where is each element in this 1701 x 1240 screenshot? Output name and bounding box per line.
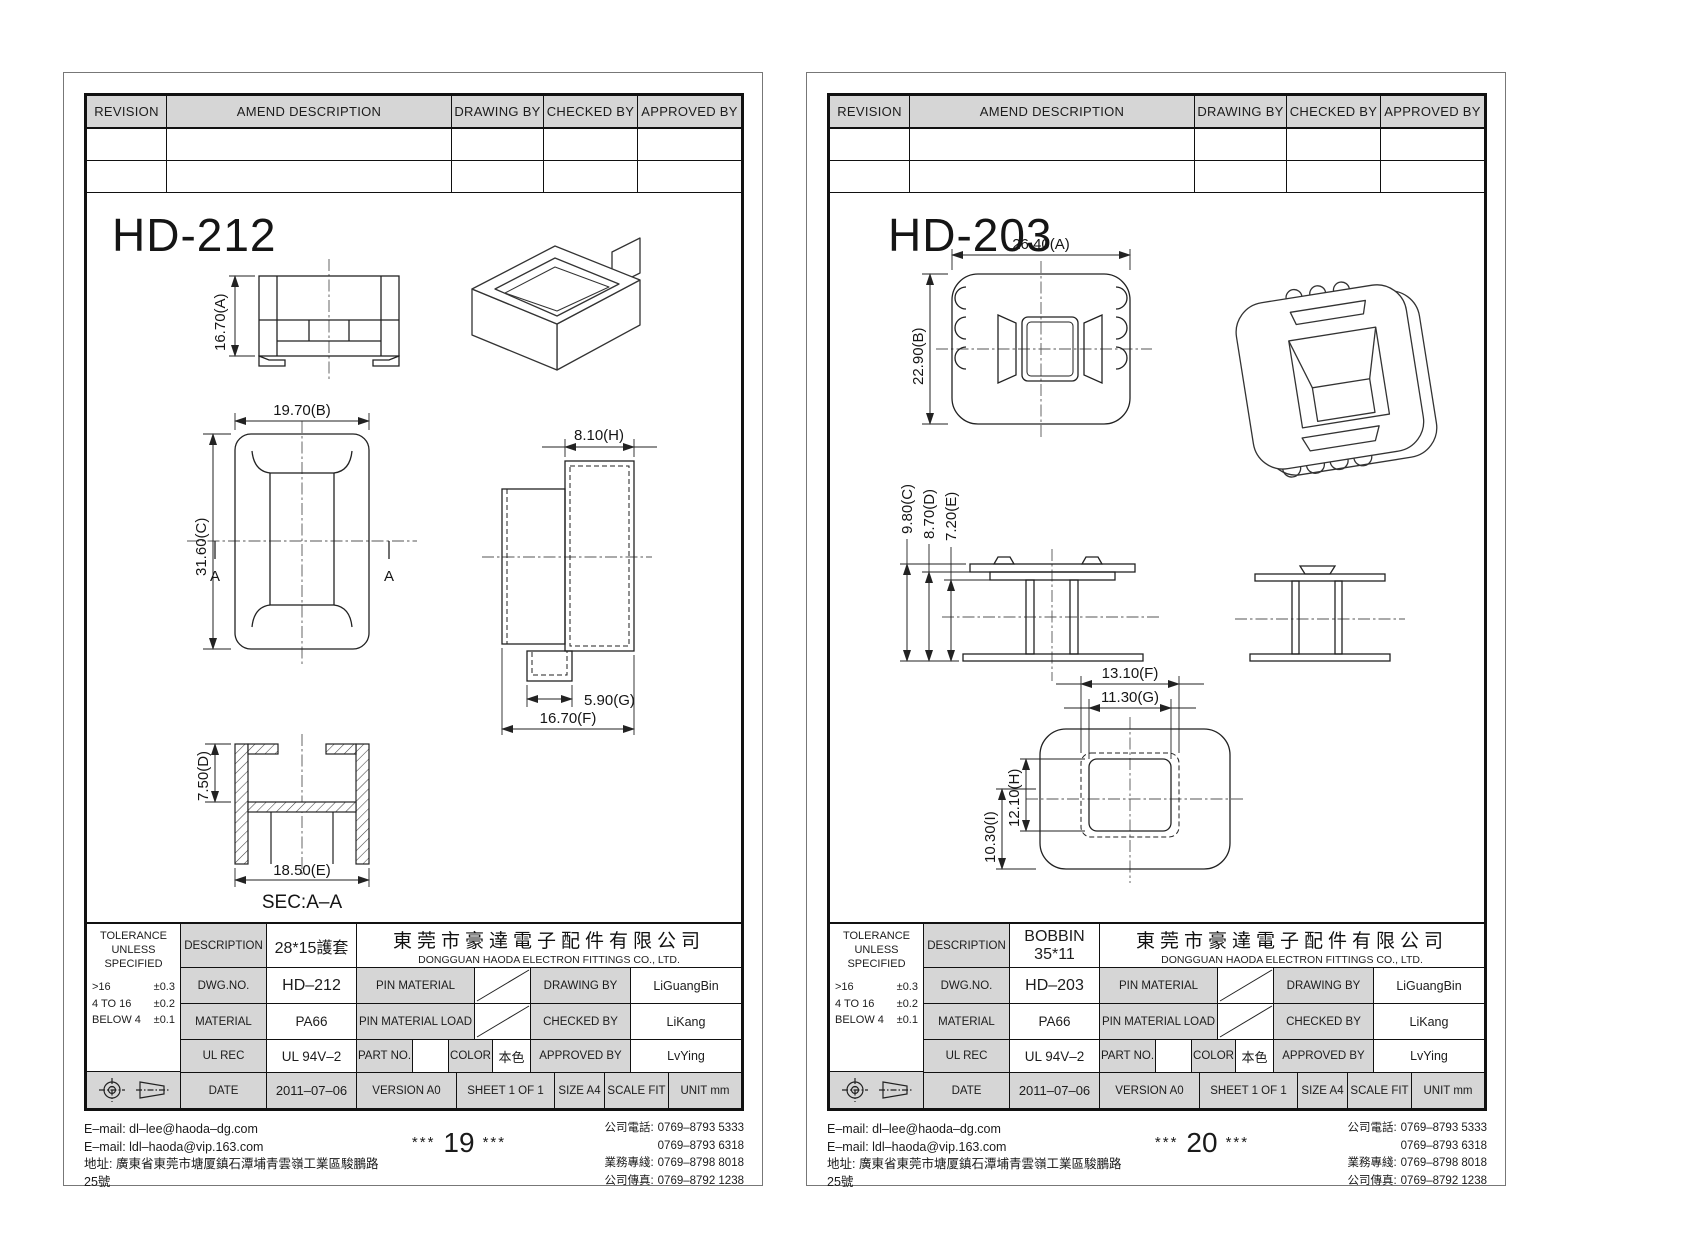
company-name-cn: 東莞市豪達電子配件有限公司 bbox=[1136, 926, 1448, 953]
diagonal-slash bbox=[1218, 1004, 1273, 1039]
drawing-sheet-hd203: REVISION AMEND DESCRIPTION DRAWING BY CH… bbox=[806, 72, 1506, 1186]
title-block: TOLERANCE UNLESS SPECIFIED >16±0.3 4 TO … bbox=[830, 922, 1484, 1108]
footer-contact-right: 公司電話:0769–8793 5333 0769–8793 6318 業務專綫:… bbox=[534, 1121, 744, 1191]
dim-label-D: 8.70(D) bbox=[921, 489, 938, 539]
page-marker-stars: *** bbox=[1226, 1127, 1250, 1151]
dim-label-A: 16.70(A) bbox=[212, 293, 229, 351]
footer-contact-left: E–mail: dl–lee@haoda–dg.com E–mail: ldl–… bbox=[827, 1121, 1127, 1191]
ul-rec-value: UL 94V–2 bbox=[1010, 1040, 1100, 1072]
part-no-value bbox=[1156, 1040, 1192, 1072]
projection-symbols-cell bbox=[87, 1072, 180, 1108]
drawing-by-label: DRAWING BY bbox=[531, 968, 631, 1003]
dwg-no-value: HD–212 bbox=[267, 968, 357, 1003]
sheet-of-cell: SHEET 1 OF 1 bbox=[457, 1073, 555, 1108]
dim-label-B: 19.70(B) bbox=[273, 402, 331, 419]
hd212-isometric-view bbox=[472, 238, 640, 370]
dwg-no-row: DWG.NO. HD–203 PIN MATERIAL DRAWING BY L… bbox=[924, 968, 1484, 1004]
tolerance-line3: SPECIFIED bbox=[92, 958, 175, 972]
size-cell: SIZE A4 bbox=[555, 1073, 605, 1108]
footer-address: 地址: 廣東省東莞市塘厦鎮石潭埔青雲嶺工業區駿鵬路25號 bbox=[827, 1156, 1127, 1191]
checked-by-col: CHECKED BY bbox=[544, 96, 638, 127]
empty-cell bbox=[1287, 161, 1381, 192]
hd212-top-view bbox=[229, 259, 399, 381]
tol-value: ±0.3 bbox=[154, 979, 175, 996]
date-value: 2011–07–06 bbox=[1010, 1073, 1100, 1108]
drawing-frame: REVISION AMEND DESCRIPTION DRAWING BY CH… bbox=[827, 93, 1487, 1111]
revision-table: REVISION AMEND DESCRIPTION DRAWING BY CH… bbox=[830, 96, 1484, 193]
tel-number-2: 0769–8793 6318 bbox=[658, 1139, 744, 1157]
title-block-main: DESCRIPTION BOBBIN 35*11 東莞市豪達電子配件有限公司 D… bbox=[924, 924, 1484, 1108]
tolerance-rule-3: BELOW 4±0.1 bbox=[92, 1012, 175, 1029]
material-value: PA66 bbox=[1010, 1004, 1100, 1039]
revision-col: REVISION bbox=[830, 96, 910, 127]
tel-label: 公司電話: bbox=[604, 1121, 653, 1139]
page-number: 19 bbox=[443, 1127, 474, 1159]
description-row: DESCRIPTION BOBBIN 35*11 東莞市豪達電子配件有限公司 D… bbox=[924, 924, 1484, 968]
part-no-label: PART NO. bbox=[1100, 1040, 1156, 1072]
tolerance-column: TOLERANCE UNLESS SPECIFIED >16±0.3 4 TO … bbox=[830, 924, 924, 1108]
dim-label-G: 11.30(G) bbox=[1101, 689, 1159, 706]
drawing-by-col: DRAWING BY bbox=[452, 96, 544, 127]
unit-cell: UNIT mm bbox=[1412, 1073, 1484, 1108]
tolerance-line2: UNLESS bbox=[835, 944, 918, 958]
drawing-by-col: DRAWING BY bbox=[1195, 96, 1287, 127]
tel-label: 公司電話: bbox=[1347, 1121, 1396, 1139]
approved-by-col: APPROVED BY bbox=[1381, 96, 1484, 127]
sheet-title: HD-203 bbox=[888, 209, 1053, 261]
hd203-bottom-view bbox=[996, 676, 1244, 883]
tolerance-rule-1: >16±0.3 bbox=[92, 979, 175, 996]
dwg-no-label: DWG.NO. bbox=[924, 968, 1010, 1003]
tol-value: ±0.3 bbox=[897, 979, 918, 996]
empty-cell bbox=[452, 129, 544, 160]
empty-cell bbox=[167, 161, 452, 192]
fax-number: 0769–8792 1238 bbox=[1401, 1174, 1487, 1192]
spacer bbox=[604, 1139, 653, 1157]
checked-by-col: CHECKED BY bbox=[1287, 96, 1381, 127]
tol-value: ±0.2 bbox=[897, 996, 918, 1013]
biz-number: 0769–8798 8018 bbox=[1401, 1156, 1487, 1174]
tol-range: 4 TO 16 bbox=[92, 996, 131, 1013]
footer-email-2: E–mail: ldl–haoda@vip.163.com bbox=[827, 1139, 1127, 1157]
ul-rec-row: UL REC UL 94V–2 PART NO. COLOR 本色 APPROV… bbox=[924, 1040, 1484, 1073]
date-row: DATE 2011–07–06 VERSION A0 SHEET 1 OF 1 … bbox=[181, 1073, 741, 1108]
pin-material-load-value bbox=[1218, 1004, 1274, 1039]
page-marker-stars: *** bbox=[1155, 1127, 1179, 1151]
footer-address: 地址: 廣東省東莞市塘厦鎮石潭埔青雲嶺工業區駿鵬路25號 bbox=[84, 1156, 384, 1191]
hd212-front-view bbox=[187, 413, 417, 667]
material-row: MATERIAL PA66 PIN MATERIAL LOAD CHECKED … bbox=[181, 1004, 741, 1040]
empty-cell bbox=[830, 161, 910, 192]
tolerance-rule-2: 4 TO 16±0.2 bbox=[835, 996, 918, 1013]
hd203-top-view bbox=[922, 249, 1152, 439]
fax-number: 0769–8792 1238 bbox=[658, 1174, 744, 1192]
empty-cell bbox=[87, 129, 167, 160]
diagonal-slash bbox=[475, 1004, 530, 1039]
footer-email-2: E–mail: ldl–haoda@vip.163.com bbox=[84, 1139, 384, 1157]
section-marker-a-left: A bbox=[210, 568, 220, 585]
tolerance-title: TOLERANCE UNLESS SPECIFIED bbox=[92, 930, 175, 971]
ul-rec-label: UL REC bbox=[181, 1040, 267, 1072]
hd212-views: HD-212 16.70(A) bbox=[87, 189, 741, 928]
amend-description-col: AMEND DESCRIPTION bbox=[910, 96, 1195, 127]
material-row: MATERIAL PA66 PIN MATERIAL LOAD CHECKED … bbox=[924, 1004, 1484, 1040]
part-no-value bbox=[413, 1040, 449, 1072]
tel-number-1: 0769–8793 5333 bbox=[1401, 1121, 1487, 1139]
sheet-footer: E–mail: dl–lee@haoda–dg.com E–mail: ldl–… bbox=[827, 1121, 1487, 1191]
pin-material-label: PIN MATERIAL bbox=[357, 968, 475, 1003]
empty-cell bbox=[638, 129, 741, 160]
pin-material-value bbox=[1218, 968, 1274, 1003]
version-cell: VERSION A0 bbox=[1100, 1073, 1200, 1108]
drawing-by-label: DRAWING BY bbox=[1274, 968, 1374, 1003]
color-value: 本色 bbox=[1236, 1040, 1274, 1072]
dim-label-H: 12.10(H) bbox=[1006, 769, 1023, 827]
empty-cell bbox=[910, 161, 1195, 192]
tolerance-line2: UNLESS bbox=[92, 944, 175, 958]
description-label: DESCRIPTION bbox=[924, 924, 1010, 967]
dim-label-A: 26.40(A) bbox=[1012, 236, 1070, 253]
dwg-no-row: DWG.NO. HD–212 PIN MATERIAL DRAWING BY L… bbox=[181, 968, 741, 1004]
sheet-title: HD-212 bbox=[112, 209, 277, 261]
dim-label-I: 10.30(I) bbox=[982, 811, 999, 863]
tol-range: >16 bbox=[835, 979, 854, 996]
tolerance-rule-1: >16±0.3 bbox=[835, 979, 918, 996]
footer-contact-right: 公司電話:0769–8793 5333 0769–8793 6318 業務專綫:… bbox=[1277, 1121, 1487, 1191]
hd212-side-view bbox=[482, 439, 657, 735]
tol-value: ±0.1 bbox=[154, 1012, 175, 1029]
tol-value: ±0.2 bbox=[154, 996, 175, 1013]
material-value: PA66 bbox=[267, 1004, 357, 1039]
description-row: DESCRIPTION 28*15護套 東莞市豪達電子配件有限公司 DONGGU… bbox=[181, 924, 741, 968]
approved-by-value: LvYing bbox=[1374, 1040, 1484, 1072]
fax-label: 公司傳真: bbox=[1347, 1174, 1396, 1192]
dim-label-F: 16.70(F) bbox=[540, 710, 597, 727]
phone-list: 公司電話:0769–8793 5333 0769–8793 6318 業務專綫:… bbox=[1347, 1121, 1487, 1191]
tolerance-rule-3: BELOW 4±0.1 bbox=[835, 1012, 918, 1029]
hd203-profile-view bbox=[900, 539, 1162, 681]
biz-label: 業務專綫: bbox=[604, 1156, 653, 1174]
empty-cell bbox=[452, 161, 544, 192]
scale-cell: SCALE FIT bbox=[1348, 1073, 1412, 1108]
tolerance-rule-2: 4 TO 16±0.2 bbox=[92, 996, 175, 1013]
projection-symbols-cell bbox=[830, 1072, 923, 1108]
dim-label-F: 13.10(F) bbox=[1102, 665, 1159, 682]
page-marker: *** 19 *** bbox=[384, 1121, 534, 1191]
description-value: BOBBIN 35*11 bbox=[1010, 924, 1100, 967]
fax-label: 公司傳真: bbox=[604, 1174, 653, 1192]
revision-header-row: REVISION AMEND DESCRIPTION DRAWING BY CH… bbox=[830, 96, 1484, 129]
checked-by-value: LiKang bbox=[631, 1004, 741, 1039]
tolerance-line1: TOLERANCE bbox=[92, 930, 175, 944]
unit-cell: UNIT mm bbox=[669, 1073, 741, 1108]
tel-number-1: 0769–8793 5333 bbox=[658, 1121, 744, 1139]
drawing-sheet-hd212: REVISION AMEND DESCRIPTION DRAWING BY CH… bbox=[63, 72, 763, 1186]
description-value: 28*15護套 bbox=[267, 924, 357, 967]
amend-description-col: AMEND DESCRIPTION bbox=[167, 96, 452, 127]
empty-cell bbox=[638, 161, 741, 192]
material-label: MATERIAL bbox=[181, 1004, 267, 1039]
tolerance-line1: TOLERANCE bbox=[835, 930, 918, 944]
empty-cell bbox=[1195, 129, 1287, 160]
checked-by-value: LiKang bbox=[1374, 1004, 1484, 1039]
tol-range: >16 bbox=[92, 979, 111, 996]
sheet-footer: E–mail: dl–lee@haoda–dg.com E–mail: ldl–… bbox=[84, 1121, 744, 1191]
dim-label-C: 9.80(C) bbox=[899, 484, 916, 534]
company-name-cn: 東莞市豪達電子配件有限公司 bbox=[393, 926, 705, 953]
approved-by-label: APPROVED BY bbox=[531, 1040, 631, 1072]
third-angle-projection-icon bbox=[879, 1077, 913, 1103]
empty-cell bbox=[167, 129, 452, 160]
company-name-en: DONGGUAN HAODA ELECTRON FITTINGS CO., LT… bbox=[418, 954, 680, 966]
footer-email-1: E–mail: dl–lee@haoda–dg.com bbox=[827, 1121, 1127, 1139]
checked-by-label: CHECKED BY bbox=[531, 1004, 631, 1039]
empty-cell bbox=[1381, 161, 1484, 192]
dim-label-H: 8.10(H) bbox=[574, 427, 624, 444]
drawing-by-value: LiGuangBin bbox=[1374, 968, 1484, 1003]
empty-cell bbox=[1287, 129, 1381, 160]
checked-by-label: CHECKED BY bbox=[1274, 1004, 1374, 1039]
biz-number: 0769–8798 8018 bbox=[658, 1156, 744, 1174]
dim-label-B: 22.90(B) bbox=[910, 327, 927, 385]
tolerance-line3: SPECIFIED bbox=[835, 958, 918, 972]
approved-by-value: LvYing bbox=[631, 1040, 741, 1072]
sheet-of-cell: SHEET 1 OF 1 bbox=[1200, 1073, 1298, 1108]
hd203-isometric-view bbox=[1231, 271, 1442, 483]
revision-header-row: REVISION AMEND DESCRIPTION DRAWING BY CH… bbox=[87, 96, 741, 129]
color-label: COLOR bbox=[449, 1040, 493, 1072]
tolerance-title: TOLERANCE UNLESS SPECIFIED bbox=[835, 930, 918, 971]
dim-label-E: 7.20(E) bbox=[943, 492, 960, 541]
empty-cell bbox=[910, 129, 1195, 160]
tel-number-2: 0769–8793 6318 bbox=[1401, 1139, 1487, 1157]
company-cell: 東莞市豪達電子配件有限公司 DONGGUAN HAODA ELECTRON FI… bbox=[1100, 924, 1484, 967]
size-cell: SIZE A4 bbox=[1298, 1073, 1348, 1108]
hd203-drawing-area: HD-203 26.40(A) bbox=[830, 189, 1484, 928]
material-label: MATERIAL bbox=[924, 1004, 1010, 1039]
company-cell: 東莞市豪達電子配件有限公司 DONGGUAN HAODA ELECTRON FI… bbox=[357, 924, 741, 967]
dim-label-C: 31.60(C) bbox=[193, 518, 210, 576]
empty-cell bbox=[544, 129, 638, 160]
dim-label-G: 5.90(G) bbox=[584, 692, 635, 709]
empty-cell bbox=[1195, 161, 1287, 192]
approved-by-label: APPROVED BY bbox=[1274, 1040, 1374, 1072]
hd203-profile-view-right bbox=[1235, 566, 1405, 661]
company-name-en: DONGGUAN HAODA ELECTRON FITTINGS CO., LT… bbox=[1161, 954, 1423, 966]
hd212-drawing-area: HD-212 16.70(A) bbox=[87, 189, 741, 928]
title-block: TOLERANCE UNLESS SPECIFIED >16±0.3 4 TO … bbox=[87, 922, 741, 1108]
tolerance-cell: TOLERANCE UNLESS SPECIFIED >16±0.3 4 TO … bbox=[87, 924, 180, 1072]
section-marker-a-right: A bbox=[384, 568, 394, 585]
hd203-views: HD-203 26.40(A) bbox=[830, 189, 1484, 928]
pin-material-load-value bbox=[475, 1004, 531, 1039]
tol-value: ±0.1 bbox=[897, 1012, 918, 1029]
page-marker-stars: *** bbox=[412, 1127, 436, 1151]
date-label: DATE bbox=[924, 1073, 1010, 1108]
footer-email-1: E–mail: dl–lee@haoda–dg.com bbox=[84, 1121, 384, 1139]
diagonal-slash bbox=[1218, 968, 1273, 1003]
dim-label-E: 18.50(E) bbox=[273, 862, 331, 879]
dim-label-D: 7.50(D) bbox=[195, 751, 212, 801]
phone-list: 公司電話:0769–8793 5333 0769–8793 6318 業務專綫:… bbox=[604, 1121, 744, 1191]
revision-table: REVISION AMEND DESCRIPTION DRAWING BY CH… bbox=[87, 96, 741, 193]
tolerance-cell: TOLERANCE UNLESS SPECIFIED >16±0.3 4 TO … bbox=[830, 924, 923, 1072]
tol-range: BELOW 4 bbox=[92, 1012, 141, 1029]
ul-rec-label: UL REC bbox=[924, 1040, 1010, 1072]
target-symbol-icon bbox=[841, 1077, 869, 1103]
tolerance-column: TOLERANCE UNLESS SPECIFIED >16±0.3 4 TO … bbox=[87, 924, 181, 1108]
page-marker-stars: *** bbox=[483, 1127, 507, 1151]
pin-material-value bbox=[475, 968, 531, 1003]
part-no-label: PART NO. bbox=[357, 1040, 413, 1072]
empty-cell bbox=[87, 161, 167, 192]
section-view-label: SEC:A–A bbox=[262, 892, 343, 913]
page-number: 20 bbox=[1186, 1127, 1217, 1159]
date-row: DATE 2011–07–06 VERSION A0 SHEET 1 OF 1 … bbox=[924, 1073, 1484, 1108]
empty-cell bbox=[544, 161, 638, 192]
page-marker: *** 20 *** bbox=[1127, 1121, 1277, 1191]
empty-cell bbox=[1381, 129, 1484, 160]
target-symbol-icon bbox=[98, 1077, 126, 1103]
date-label: DATE bbox=[181, 1073, 267, 1108]
revision-col: REVISION bbox=[87, 96, 167, 127]
footer-contact-left: E–mail: dl–lee@haoda–dg.com E–mail: ldl–… bbox=[84, 1121, 384, 1191]
ul-rec-row: UL REC UL 94V–2 PART NO. COLOR 本色 APPROV… bbox=[181, 1040, 741, 1073]
drawing-by-value: LiGuangBin bbox=[631, 968, 741, 1003]
ul-rec-value: UL 94V–2 bbox=[267, 1040, 357, 1072]
diagonal-slash bbox=[475, 968, 530, 1003]
dwg-no-label: DWG.NO. bbox=[181, 968, 267, 1003]
title-block-main: DESCRIPTION 28*15護套 東莞市豪達電子配件有限公司 DONGGU… bbox=[181, 924, 741, 1108]
third-angle-projection-icon bbox=[136, 1077, 170, 1103]
approved-by-col: APPROVED BY bbox=[638, 96, 741, 127]
page: { "revision_header": { "cols": ["REVISIO… bbox=[0, 0, 1701, 1240]
color-label: COLOR bbox=[1192, 1040, 1236, 1072]
date-value: 2011–07–06 bbox=[267, 1073, 357, 1108]
version-cell: VERSION A0 bbox=[357, 1073, 457, 1108]
scale-cell: SCALE FIT bbox=[605, 1073, 669, 1108]
revision-empty-row bbox=[830, 129, 1484, 161]
revision-empty-row bbox=[87, 129, 741, 161]
pin-material-load-label: PIN MATERIAL LOAD bbox=[1100, 1004, 1218, 1039]
dwg-no-value: HD–203 bbox=[1010, 968, 1100, 1003]
pin-material-label: PIN MATERIAL bbox=[1100, 968, 1218, 1003]
tol-range: BELOW 4 bbox=[835, 1012, 884, 1029]
pin-material-load-label: PIN MATERIAL LOAD bbox=[357, 1004, 475, 1039]
description-label: DESCRIPTION bbox=[181, 924, 267, 967]
empty-cell bbox=[830, 129, 910, 160]
drawing-frame: REVISION AMEND DESCRIPTION DRAWING BY CH… bbox=[84, 93, 744, 1111]
spacer bbox=[1347, 1139, 1396, 1157]
biz-label: 業務專綫: bbox=[1347, 1156, 1396, 1174]
tol-range: 4 TO 16 bbox=[835, 996, 874, 1013]
color-value: 本色 bbox=[493, 1040, 531, 1072]
